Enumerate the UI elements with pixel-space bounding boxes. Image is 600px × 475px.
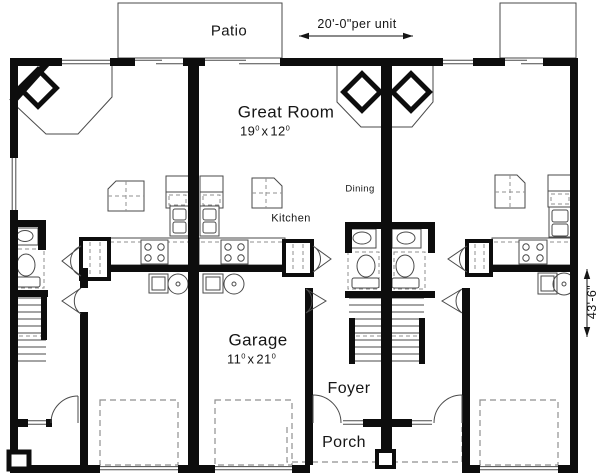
pantry-middle-unit [284,241,312,275]
stairs-right-unit [392,298,425,364]
dimension-arrow-width [299,33,413,39]
porch-center-outline [287,427,462,462]
great-room-label: Great Room [238,104,335,121]
porch-label: Porch [322,435,366,451]
foyer-label: Foyer [328,381,371,397]
fireplace-left-unit [12,62,112,134]
garage-label: Garage [228,332,287,349]
great-room-size: 190x120 [240,124,290,137]
patio-slab-right [500,3,576,58]
pantry-right-unit [467,241,491,275]
stairs-middle-unit [349,298,381,364]
porch-post-center [377,451,394,467]
garage-door-dashed-left [100,400,178,465]
utility-right-unit [538,273,575,295]
garage-size: 110x210 [227,352,276,365]
dining-label: Dining [345,184,374,194]
floor-plan-drawing [0,0,600,475]
floor-plan: Patio 20'-0"per unit Great Room 190x120 … [0,0,600,475]
width-dimension-label: 20'-0"per unit [317,18,396,31]
garage-door-dashed-right [480,400,558,465]
porch-post-left [9,452,29,469]
kitchen-left-unit [108,176,190,265]
patio-label: Patio [211,24,247,39]
bathroom-right-unit [392,229,425,289]
kitchen-label: Kitchen [271,214,311,225]
patio-slab-left [118,3,282,58]
garage-door-dashed-middle [215,400,292,465]
utility-middle-unit [203,274,244,294]
depth-dimension-label: 43'-6" [586,285,599,319]
utility-left-unit [149,274,188,294]
kitchen-right-unit [492,175,572,265]
